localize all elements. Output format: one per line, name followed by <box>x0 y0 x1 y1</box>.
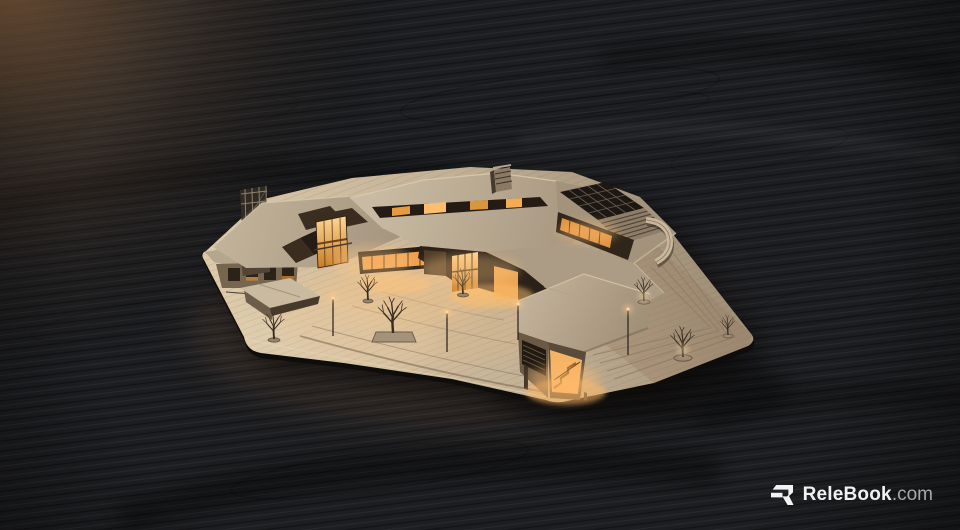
watermark-suffix: .com <box>892 484 933 506</box>
render-viewport: ReleBook.com <box>0 0 960 530</box>
relebook-r-icon <box>771 484 794 506</box>
watermark-brand: ReleBook <box>803 484 892 506</box>
architectural-model-render <box>0 0 960 530</box>
relebook-watermark: ReleBook.com <box>771 484 933 506</box>
